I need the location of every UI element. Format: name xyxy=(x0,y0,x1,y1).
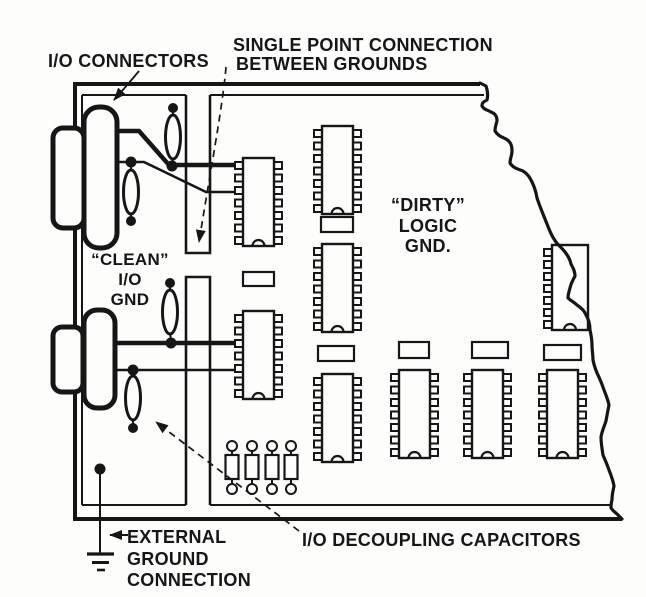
moat-upper-slot xyxy=(186,95,210,253)
label-dirty-2: LOGIC xyxy=(399,216,458,236)
ic-2 xyxy=(314,126,361,214)
label-clean-3: GND xyxy=(111,290,150,309)
decoupling-cap-4 xyxy=(126,365,141,434)
axial-1 xyxy=(226,441,239,494)
label-single-point-2: BETWEEN GROUNDS xyxy=(236,54,428,74)
bypass-cap-2 xyxy=(321,217,353,232)
connector-upper-outer-shell xyxy=(53,128,84,228)
label-dirty-3: GND. xyxy=(405,236,451,256)
bypass-cap-4 xyxy=(399,342,429,358)
connector-lower-outer-shell xyxy=(53,327,83,392)
axial-components xyxy=(226,441,298,494)
bypass-cap-6 xyxy=(544,345,581,360)
bypass-cap-3 xyxy=(318,346,354,361)
connector-upper-body xyxy=(84,107,117,248)
ic-3 xyxy=(235,311,282,399)
ic-4 xyxy=(314,244,361,332)
ic-7 xyxy=(464,370,511,458)
figure-canvas: I/O CONNECTORS SINGLE POINT CONNECTION B… xyxy=(0,0,646,597)
axial-2 xyxy=(246,441,259,494)
ground-via-dot xyxy=(95,464,106,475)
axial-3 xyxy=(266,441,279,494)
bypass-cap-1 xyxy=(243,272,274,286)
ic-5 xyxy=(314,374,361,462)
ic-9-torn-edge xyxy=(544,245,588,330)
label-decoupling: I/O DECOUPLING CAPACITORS xyxy=(302,530,581,550)
axial-4 xyxy=(285,441,298,494)
label-single-point-1: SINGLE POINT CONNECTION xyxy=(233,35,493,55)
decoupling-cap-3 xyxy=(163,278,178,349)
ic-8 xyxy=(539,370,586,458)
decoupling-cap-2 xyxy=(124,157,139,227)
ground-isolation-moat xyxy=(186,95,210,505)
earth-ground-symbol xyxy=(87,554,114,570)
moat-lower-slot xyxy=(186,277,210,505)
ic-1 xyxy=(235,158,282,246)
logic-ics xyxy=(235,126,588,462)
external-ground-connection xyxy=(87,464,128,571)
label-external-1: EXTERNAL xyxy=(127,527,226,547)
ic-6 xyxy=(391,370,438,458)
label-external-3: CONNECTION xyxy=(127,570,251,590)
io-connector-upper xyxy=(53,107,117,248)
label-io-connectors: I/O CONNECTORS xyxy=(48,51,209,71)
label-clean-1: “CLEAN” xyxy=(91,250,169,269)
leader-single-point xyxy=(199,67,226,242)
label-clean-2: I/O xyxy=(118,270,142,289)
io-connector-lower xyxy=(53,310,115,408)
label-external-2: GROUND xyxy=(127,549,209,569)
connector-lower-body xyxy=(84,310,115,408)
grounding-diagram: I/O CONNECTORS SINGLE POINT CONNECTION B… xyxy=(0,0,646,597)
label-dirty-1: “DIRTY” xyxy=(391,195,465,215)
bypass-cap-5 xyxy=(472,342,508,358)
